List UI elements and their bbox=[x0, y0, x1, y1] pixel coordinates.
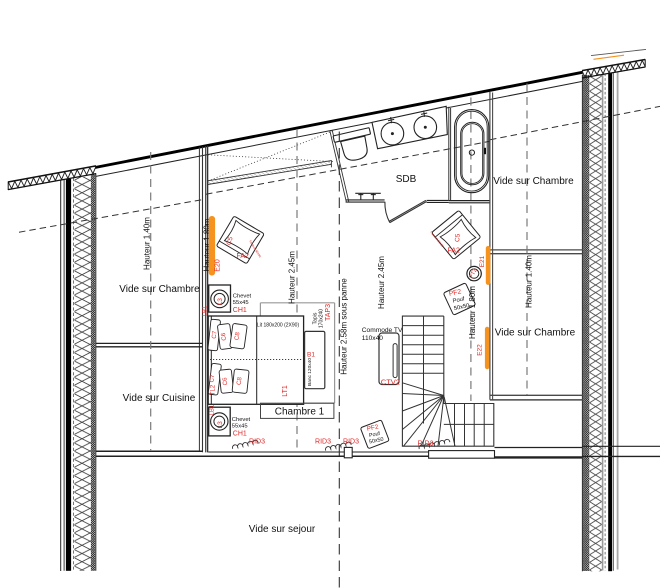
svg-text:LB1: LB1 bbox=[202, 305, 208, 316]
svg-text:170x240: 170x240 bbox=[319, 309, 325, 328]
svg-text:CH1: CH1 bbox=[233, 430, 247, 437]
svg-text:Hauteur 1.40m: Hauteur 1.40m bbox=[143, 217, 152, 270]
svg-text:Chevet: Chevet bbox=[232, 417, 251, 423]
svg-text:C7: C7 bbox=[208, 374, 216, 383]
svg-text:Chevet: Chevet bbox=[233, 294, 252, 300]
svg-text:55x45: 55x45 bbox=[233, 300, 249, 306]
svg-text:LT1: LT1 bbox=[282, 385, 289, 397]
svg-text:TAP3: TAP3 bbox=[325, 304, 332, 321]
svg-text:Hauteur 1.40m: Hauteur 1.40m bbox=[525, 255, 534, 308]
svg-text:Vide sur sejour: Vide sur sejour bbox=[249, 524, 316, 535]
svg-text:L3: L3 bbox=[217, 421, 224, 429]
svg-text:FA2: FA2 bbox=[237, 253, 250, 260]
svg-text:C6: C6 bbox=[221, 377, 229, 386]
svg-text:Hauteur 2.58m sous panne: Hauteur 2.58m sous panne bbox=[340, 278, 349, 375]
svg-text:Hauteur 2.45m: Hauteur 2.45m bbox=[288, 251, 297, 304]
svg-text:E20: E20 bbox=[214, 259, 221, 272]
svg-text:Chambre 1: Chambre 1 bbox=[275, 406, 325, 417]
svg-text:C7: C7 bbox=[211, 330, 219, 339]
svg-text:SDB: SDB bbox=[396, 174, 417, 185]
svg-text:Vide sur Cuisine: Vide sur Cuisine bbox=[123, 393, 196, 404]
svg-text:110x40: 110x40 bbox=[362, 335, 383, 342]
svg-text:TL2: TL2 bbox=[210, 384, 216, 395]
svg-text:Banc 120x40: Banc 120x40 bbox=[307, 358, 313, 386]
svg-text:LB1: LB1 bbox=[210, 404, 216, 415]
svg-text:FA2: FA2 bbox=[448, 248, 461, 255]
svg-text:CH1: CH1 bbox=[233, 307, 247, 314]
svg-text:L3: L3 bbox=[217, 298, 224, 306]
svg-text:E21: E21 bbox=[479, 255, 486, 267]
svg-text:Hauteur 2.45m: Hauteur 2.45m bbox=[377, 256, 386, 309]
svg-text:E22: E22 bbox=[477, 344, 484, 356]
svg-text:55x45: 55x45 bbox=[232, 424, 248, 430]
svg-text:RID3: RID3 bbox=[249, 439, 265, 446]
svg-text:Vide sur Chambre: Vide sur Chambre bbox=[119, 284, 200, 295]
svg-text:C8: C8 bbox=[233, 331, 241, 340]
svg-text:Vide sur Chambre: Vide sur Chambre bbox=[493, 176, 574, 187]
svg-text:Vide sur Chambre: Vide sur Chambre bbox=[495, 328, 576, 339]
svg-text:C5: C5 bbox=[454, 233, 462, 242]
svg-text:Commode TV: Commode TV bbox=[362, 327, 403, 334]
svg-text:C6: C6 bbox=[220, 332, 228, 341]
svg-text:Lit 180x200 (2X90): Lit 180x200 (2X90) bbox=[257, 323, 300, 329]
svg-text:CTV2: CTV2 bbox=[381, 377, 400, 386]
svg-text:C8: C8 bbox=[236, 376, 244, 385]
svg-text:RID3: RID3 bbox=[343, 439, 359, 446]
svg-text:B1: B1 bbox=[307, 352, 315, 359]
svg-text:RID3: RID3 bbox=[315, 439, 331, 446]
svg-text:RID3: RID3 bbox=[418, 441, 434, 448]
svg-text:Hauteur 1.80m: Hauteur 1.80m bbox=[468, 286, 477, 339]
